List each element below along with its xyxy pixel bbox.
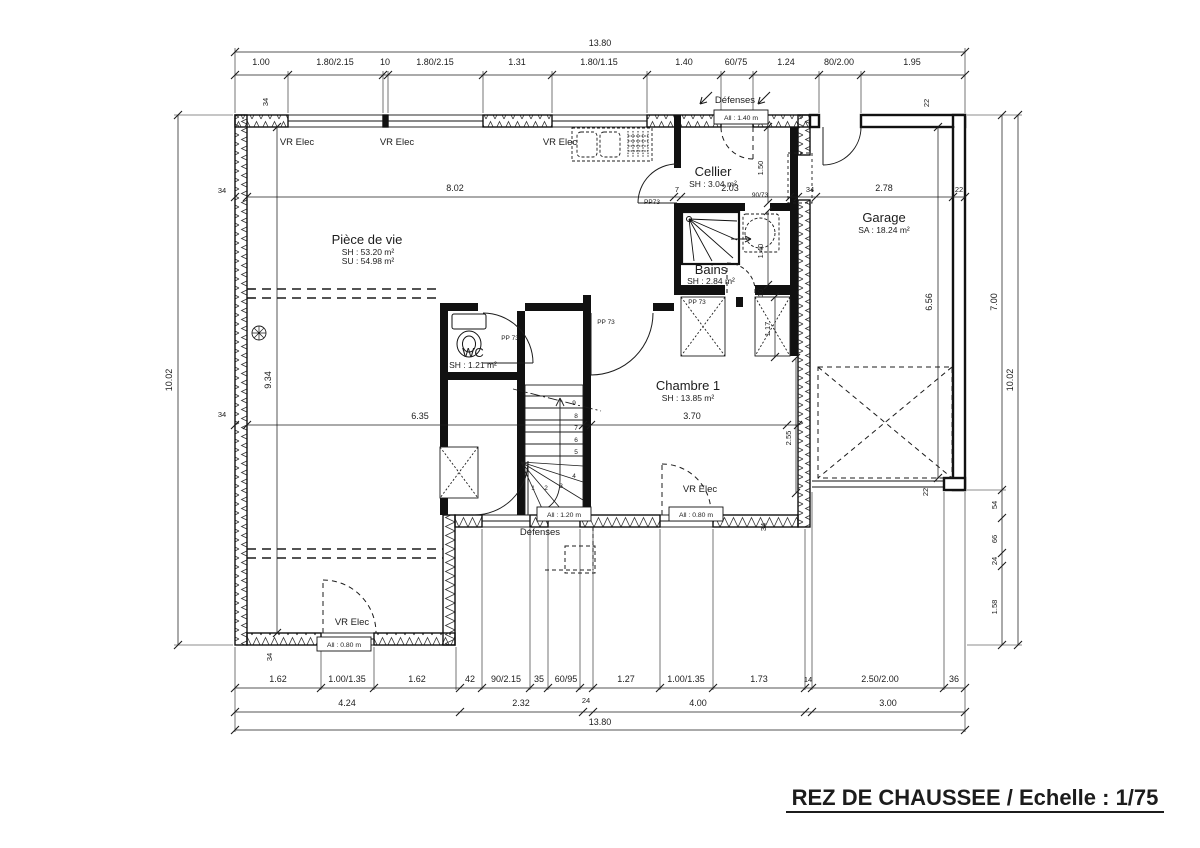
dim-top-seg: 10 bbox=[380, 57, 390, 67]
room-name-living: Pièce de vie bbox=[332, 232, 403, 247]
dim-bains-d: 1.40 bbox=[756, 244, 765, 259]
dim-bot2-seg: 2.32 bbox=[512, 698, 530, 708]
door-garage-top bbox=[823, 127, 861, 165]
dim-bot-seg: 42 bbox=[465, 674, 475, 684]
partitions bbox=[440, 115, 798, 515]
entry-arrow-icon bbox=[700, 92, 712, 104]
garage-vehicle-door bbox=[812, 481, 944, 487]
dim-wall: 34 bbox=[218, 410, 226, 419]
dim-left-overall: 10.02 bbox=[164, 369, 174, 392]
sill-label: All : 1.40 m bbox=[724, 115, 758, 122]
dim-bot-seg: 14 bbox=[804, 675, 812, 684]
vmc-symbol bbox=[252, 326, 266, 340]
dimension-lines bbox=[174, 48, 1022, 732]
room-area-cellier: SH : 3.04 m² bbox=[689, 179, 737, 189]
vr-elec-label: VR Elec bbox=[683, 484, 718, 495]
dim-bot-seg: 35 bbox=[534, 674, 544, 684]
door-tag-pp73: PP73 bbox=[644, 199, 660, 206]
dim-bot2-seg: 4.00 bbox=[689, 698, 707, 708]
window-top-1 bbox=[288, 115, 383, 127]
dim-wall: 34 bbox=[759, 523, 768, 531]
stair-number: 5 bbox=[574, 449, 578, 456]
room-area-wc: SH : 1.21 m² bbox=[449, 360, 497, 370]
dim-seg: 54 bbox=[990, 501, 999, 509]
stair-number: 6 bbox=[574, 437, 578, 444]
dim-cellier-d: 1.50 bbox=[756, 161, 765, 176]
dim-bot-seg: 1.73 bbox=[750, 674, 768, 684]
room-name-wc: WC bbox=[462, 345, 484, 360]
dim-overall-bottom: 13.80 bbox=[589, 717, 612, 727]
dim-bot-seg: 1.00/1.35 bbox=[667, 674, 705, 684]
title-block: REZ DE CHAUSSEE / Echelle : 1/75 bbox=[786, 785, 1164, 812]
dim-bot-seg: 1.00/1.35 bbox=[328, 674, 366, 684]
dim-seg: 66 bbox=[990, 535, 999, 543]
closet-hall bbox=[755, 297, 790, 356]
defenses-label: Défenses bbox=[520, 527, 560, 538]
door-tag-pp73: PP 73 bbox=[501, 335, 519, 342]
dim-seg: 24 bbox=[990, 557, 999, 565]
window-top-3 bbox=[552, 115, 647, 127]
dim-bot-seg: 24 bbox=[582, 696, 590, 705]
dim-right-overall: 10.02 bbox=[1005, 369, 1015, 392]
shower bbox=[682, 212, 739, 264]
dim-garage-w: 2.78 bbox=[875, 183, 893, 193]
room-area-bains: SH : 2.84 m² bbox=[687, 276, 735, 286]
beam-dashed-lines bbox=[247, 289, 443, 558]
dim-wall: 34 bbox=[261, 98, 270, 106]
stair-number: 2 bbox=[544, 485, 548, 492]
sill-label: All : 0.80 m bbox=[679, 512, 713, 519]
dim-bot-seg: 2.50/2.00 bbox=[861, 674, 899, 684]
kitchen-unit bbox=[572, 128, 652, 161]
dim-top-seg: 1.31 bbox=[508, 57, 526, 67]
room-area-garage: SA : 18.24 m² bbox=[858, 225, 910, 235]
entry-arrow-icon bbox=[758, 92, 770, 104]
dim-top-seg: 1.95 bbox=[903, 57, 921, 67]
room-name-bains: Bains bbox=[695, 262, 728, 277]
window-top-2 bbox=[388, 115, 483, 127]
stair-number: 8 bbox=[574, 413, 578, 420]
dim-wall: 10 bbox=[756, 289, 765, 297]
dim-wall: 22 bbox=[921, 488, 930, 496]
room-name-chambre: Chambre 1 bbox=[656, 378, 720, 393]
garage-roof-cross bbox=[818, 367, 952, 478]
dim-living-w: 8.02 bbox=[446, 183, 464, 193]
doors bbox=[323, 127, 861, 633]
sill-label: All : 1.20 m bbox=[547, 512, 581, 519]
stair-number: 1 bbox=[531, 485, 535, 492]
dim-living-w2: 6.35 bbox=[411, 411, 429, 421]
dim-left-interior: 9.34 bbox=[263, 371, 273, 389]
dim-wall: 22 bbox=[955, 185, 963, 194]
dim-top-seg: 80/2.00 bbox=[824, 57, 854, 67]
hob-grid bbox=[628, 131, 648, 158]
garage-walls bbox=[810, 115, 965, 490]
dim-bot-seg: 1.27 bbox=[617, 674, 635, 684]
dim-bot-seg: 1.62 bbox=[269, 674, 287, 684]
dim-wall: 34 bbox=[218, 186, 226, 195]
door-cellier-window-swing bbox=[721, 127, 753, 159]
stair-number: 9 bbox=[572, 400, 576, 407]
dim-garage-h-in: 6.56 bbox=[924, 293, 934, 311]
dim-chambre-w: 3.70 bbox=[683, 411, 701, 421]
dim-placard-d: 1.17 bbox=[763, 322, 772, 337]
room-name-cellier: Cellier bbox=[695, 164, 733, 179]
dim-top-seg: 1.00 bbox=[252, 57, 270, 67]
dim-bot-seg: 60/95 bbox=[555, 674, 578, 684]
dim-wall: 34 bbox=[806, 185, 814, 194]
dimension-ticks bbox=[174, 48, 1022, 734]
stair-number: 7 bbox=[574, 425, 578, 432]
french-door bbox=[482, 515, 530, 527]
dim-top-seg: 1.40 bbox=[675, 57, 693, 67]
floor-plan-canvas: 13.80 1.00 1.80/2.15 10 1.80/2.15 1.31 1… bbox=[0, 0, 1200, 848]
sill-label: All : 0.80 m bbox=[327, 642, 361, 649]
stair-number: 4 bbox=[572, 473, 576, 480]
dim-wall: 34 bbox=[265, 653, 274, 661]
dim-seg: 1.58 bbox=[990, 600, 999, 615]
dim-bot-seg: 36 bbox=[949, 674, 959, 684]
room-area-chambre: SH : 13.85 m² bbox=[662, 393, 715, 403]
dim-pier: 7 bbox=[675, 185, 679, 194]
dim-wall: 22 bbox=[922, 99, 931, 107]
dim-top-seg: 1.80/1.15 bbox=[580, 57, 618, 67]
vr-elec-label: VR Elec bbox=[280, 137, 315, 148]
vr-elec-label: VR Elec bbox=[543, 137, 578, 148]
dim-bot-seg: 1.62 bbox=[408, 674, 426, 684]
dim-overall-top: 13.80 bbox=[589, 38, 612, 48]
dim-top-seg: 1.80/2.15 bbox=[416, 57, 454, 67]
door-direction-arrow bbox=[731, 236, 751, 242]
stair-number: 3 bbox=[559, 483, 563, 490]
vr-elec-label: VR Elec bbox=[335, 617, 370, 628]
dim-chambre-side: 2.55 bbox=[784, 431, 793, 446]
dim-bot-seg: 90/2.15 bbox=[491, 674, 521, 684]
floor-plan-page: 13.80 1.00 1.80/2.15 10 1.80/2.15 1.31 1… bbox=[0, 0, 1200, 848]
door-tag: 90/73 bbox=[752, 192, 769, 199]
door-tag-pp73: PP 73 bbox=[688, 299, 706, 306]
closets bbox=[440, 297, 790, 498]
defenses-label: Défenses bbox=[715, 95, 755, 106]
dim-top-seg: 1.24 bbox=[777, 57, 795, 67]
pl an-title: REZ DE CHAUSSEE / Echelle : 1/75 bbox=[792, 785, 1159, 810]
dim-bot2-seg: 4.24 bbox=[338, 698, 356, 708]
room-area-living-su: SU : 54.98 m² bbox=[342, 256, 395, 266]
dim-bot2-seg: 3.00 bbox=[879, 698, 897, 708]
room-name-garage: Garage bbox=[862, 210, 905, 225]
dim-top-seg: 60/75 bbox=[725, 57, 748, 67]
door-tag-pp73: PP 73 bbox=[597, 319, 615, 326]
dim-top-seg: 1.80/2.15 bbox=[316, 57, 354, 67]
closet-living bbox=[440, 447, 478, 498]
vr-elec-label: VR Elec bbox=[380, 137, 415, 148]
dim-garage-h-out: 7.00 bbox=[989, 293, 999, 311]
